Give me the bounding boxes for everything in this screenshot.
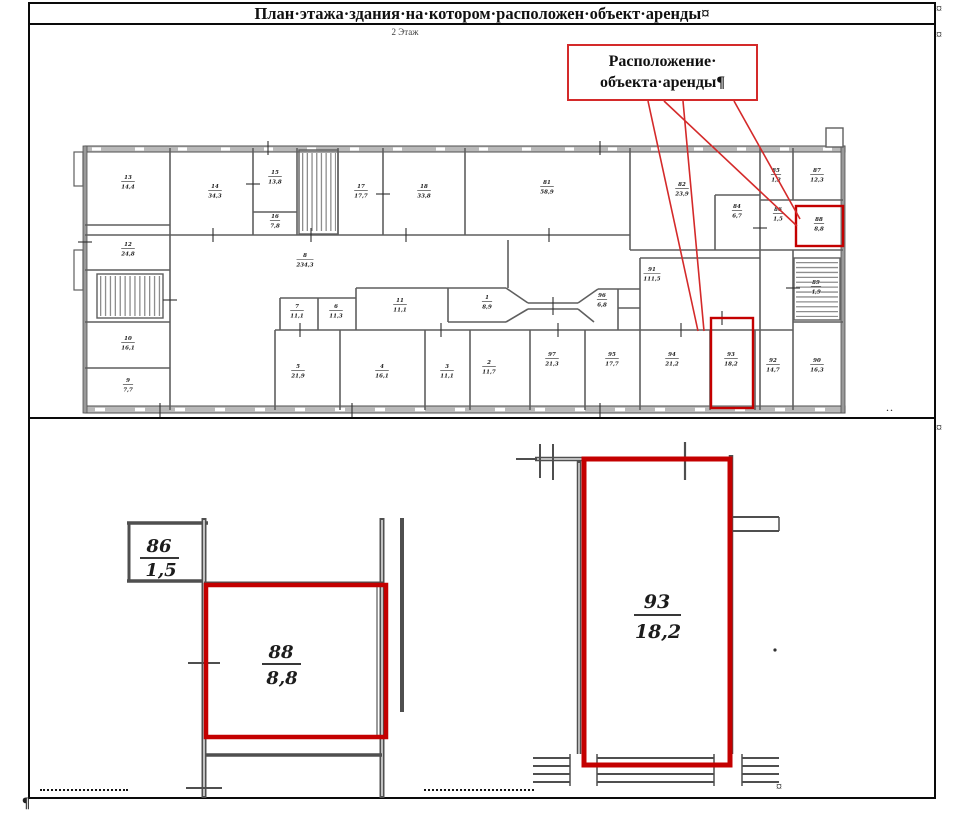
- svg-text:8,8: 8,8: [814, 227, 824, 233]
- svg-text:11,3: 11,3: [329, 314, 343, 320]
- svg-text:8,9: 8,9: [482, 305, 492, 311]
- svg-text:16: 16: [271, 214, 279, 220]
- svg-text:91: 91: [648, 267, 656, 273]
- svg-text:7,8: 7,8: [270, 224, 280, 230]
- detail-right-room-93: 93 18,2: [516, 442, 779, 786]
- svg-text:11,7: 11,7: [482, 370, 496, 376]
- svg-text:16,3: 16,3: [810, 368, 824, 374]
- svg-text:16,1: 16,1: [121, 346, 134, 352]
- svg-text:84: 84: [733, 204, 741, 210]
- highlight-detail-room-88: [206, 585, 386, 737]
- svg-text:234,3: 234,3: [295, 263, 313, 269]
- svg-text:5: 5: [296, 364, 300, 370]
- svg-text:6,7: 6,7: [732, 214, 742, 220]
- svg-text:93: 93: [727, 352, 735, 358]
- svg-text:7: 7: [295, 304, 299, 310]
- row-end-mark-1: ¤: [936, 1, 942, 16]
- room-labels: 1314,41224,81434,31513,8167,81717,71833,…: [120, 168, 824, 394]
- detail-views-drawing: 86 1,5 88 8,8 93 18,2: [28, 418, 936, 799]
- callout-line-1: Расположение·: [569, 52, 756, 73]
- svg-text:111,5: 111,5: [643, 277, 660, 283]
- svg-text:1: 1: [485, 295, 489, 301]
- svg-text:92: 92: [769, 358, 777, 364]
- floor-plan-drawing: 1314,41224,81434,31513,8167,81717,71833,…: [28, 24, 936, 419]
- svg-text:4,9: 4,9: [811, 290, 821, 296]
- dotted-leader-left: [40, 789, 128, 791]
- svg-text:11,1: 11,1: [393, 308, 406, 314]
- svg-text:17,7: 17,7: [354, 194, 368, 200]
- small-dots-mark: ..: [886, 400, 894, 415]
- row-end-mark-3: ¤: [936, 420, 942, 435]
- svg-text:81: 81: [543, 180, 551, 186]
- paragraph-mark: ¶: [22, 795, 30, 812]
- svg-text:34,3: 34,3: [208, 194, 222, 200]
- svg-text:7,7: 7,7: [123, 388, 133, 394]
- cell-end-mark: ¤: [776, 779, 782, 794]
- svg-text:14,7: 14,7: [766, 368, 780, 374]
- svg-text:9: 9: [126, 378, 130, 384]
- svg-text:88: 88: [815, 217, 823, 223]
- svg-text:21,9: 21,9: [290, 374, 305, 380]
- svg-text:89: 89: [812, 280, 820, 286]
- svg-text:16,1: 16,1: [375, 374, 388, 380]
- svg-text:2: 2: [486, 360, 491, 366]
- svg-text:14: 14: [211, 184, 219, 190]
- svg-text:96: 96: [598, 293, 606, 299]
- svg-text:17: 17: [357, 184, 365, 190]
- svg-text:13: 13: [124, 175, 132, 181]
- svg-text:21,2: 21,2: [664, 362, 679, 368]
- detail-room-88-number: 88: [267, 642, 294, 663]
- svg-text:24,8: 24,8: [120, 252, 135, 258]
- svg-text:14,4: 14,4: [121, 185, 135, 191]
- svg-text:58,9: 58,9: [540, 190, 554, 196]
- svg-text:13,8: 13,8: [268, 180, 282, 186]
- svg-text:94: 94: [668, 352, 676, 358]
- page-title: План·этажа·здания·на·котором·расположен·…: [30, 4, 934, 23]
- svg-text:23,9: 23,9: [674, 192, 689, 198]
- door-tick-marks: [78, 141, 800, 417]
- detail-room-93-area: 18,2: [635, 621, 681, 643]
- svg-text:6,8: 6,8: [597, 303, 607, 309]
- svg-text:12: 12: [124, 242, 132, 248]
- svg-text:33,8: 33,8: [417, 194, 431, 200]
- svg-text:97: 97: [548, 352, 556, 358]
- svg-text:8: 8: [303, 253, 307, 259]
- table-row-title: План·этажа·здания·на·котором·расположен·…: [28, 2, 936, 25]
- callout-rental-object-location: Расположение· объекта·аренды¶: [567, 44, 758, 101]
- svg-text:15: 15: [271, 170, 279, 176]
- svg-text:3: 3: [445, 364, 449, 370]
- floor-number-label: 2 Этаж: [355, 27, 455, 37]
- svg-text:82: 82: [678, 182, 686, 188]
- svg-text:4: 4: [380, 364, 384, 370]
- svg-text:11: 11: [396, 298, 404, 304]
- svg-text:11,1: 11,1: [290, 314, 303, 320]
- svg-text:1,5: 1,5: [773, 217, 783, 223]
- svg-text:11,1: 11,1: [440, 374, 453, 380]
- interior-walls: [85, 148, 843, 410]
- detail-room-86-number: 86: [145, 536, 172, 557]
- detail-room-86-area: 1,5: [145, 560, 176, 581]
- svg-text:10: 10: [124, 336, 132, 342]
- building-exterior-walls: [74, 128, 845, 413]
- svg-text:87: 87: [813, 168, 821, 174]
- svg-text:12,3: 12,3: [810, 178, 824, 184]
- detail-room-88-area: 8,8: [265, 668, 298, 689]
- document-page: { "doc": { "title": "План·этажа·здания·н…: [0, 0, 966, 820]
- row-end-mark-2: ¤: [936, 27, 942, 42]
- svg-text:18: 18: [420, 184, 428, 190]
- svg-text:17,7: 17,7: [605, 362, 619, 368]
- detail-room-93-number: 93: [644, 591, 670, 613]
- svg-text:90: 90: [813, 358, 821, 364]
- stray-dot: [773, 648, 776, 651]
- svg-text:95: 95: [608, 352, 616, 358]
- detail-left-room-88: 86 1,5 88 8,8: [127, 518, 402, 798]
- svg-text:6: 6: [334, 304, 338, 310]
- svg-text:18,2: 18,2: [724, 362, 738, 368]
- callout-line-2: объекта·аренды¶: [569, 73, 756, 94]
- svg-text:21,3: 21,3: [544, 362, 559, 368]
- dotted-leader-middle: [424, 789, 534, 791]
